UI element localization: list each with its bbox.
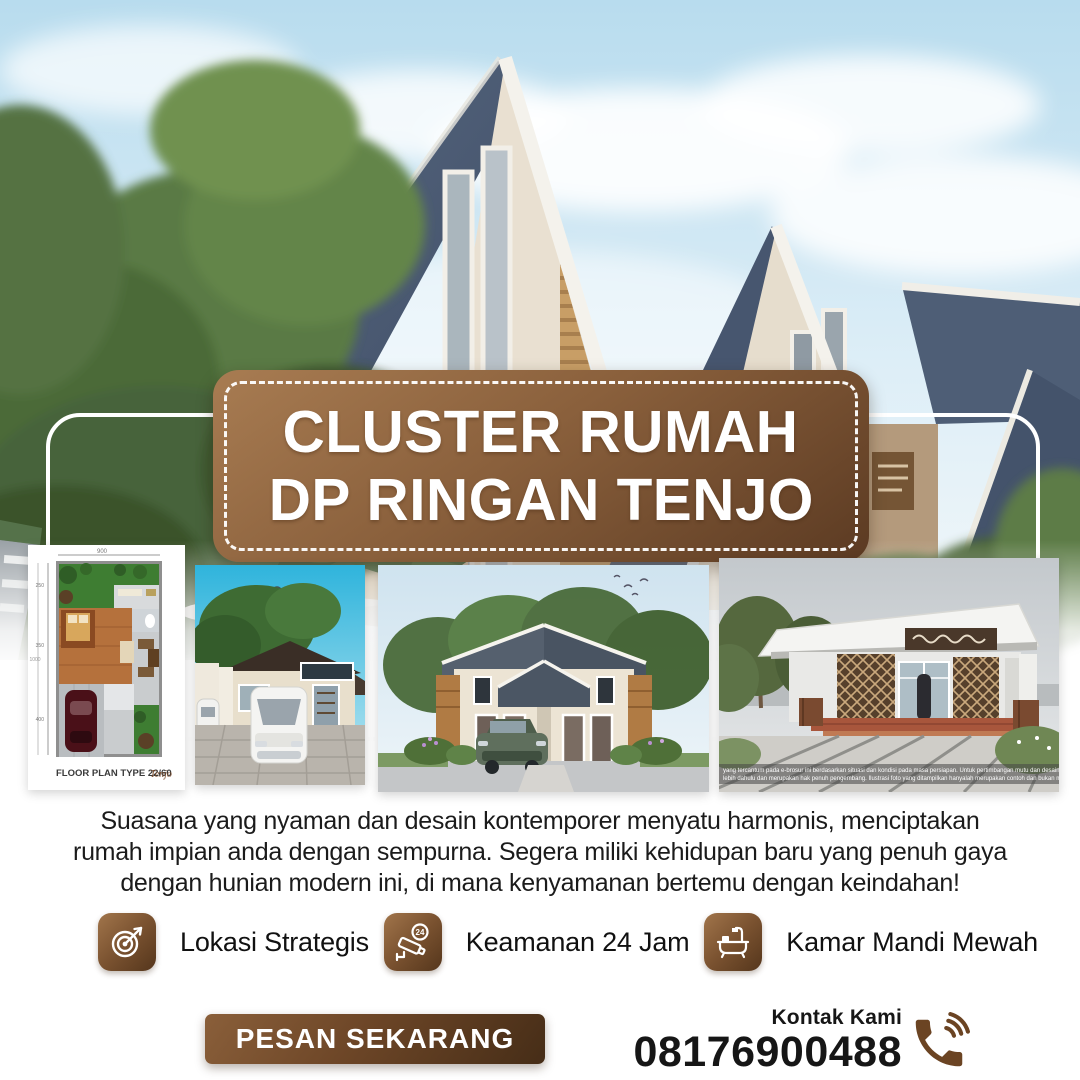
flyer-canvas: CLUSTER RUMAH DP RINGAN TENJO 900 250 35… bbox=[0, 0, 1080, 1080]
title-banner: CLUSTER RUMAH DP RINGAN TENJO bbox=[213, 370, 869, 562]
title-line-1: CLUSTER RUMAH bbox=[283, 398, 799, 466]
svg-text:lebih dahulu dan merupakan hak: lebih dahulu dan merupakan hak penuh pen… bbox=[723, 776, 1059, 782]
feature-location: Lokasi Strategis bbox=[98, 913, 369, 971]
floor-plan-dim-total: 1000 bbox=[29, 657, 40, 663]
cctv-icon: 24 bbox=[384, 913, 442, 971]
contact-label: Kontak Kami bbox=[590, 1006, 902, 1030]
description-line-3: dengan hunian modern ini, di mana kenyam… bbox=[50, 868, 1030, 899]
target-icon bbox=[98, 913, 156, 971]
floor-plan-image: 900 250 350 400 1000 bbox=[28, 545, 185, 790]
feature-bathroom: Kamar Mandi Mewah bbox=[704, 913, 1038, 971]
svg-text:yang tercantum pada e-brosur i: yang tercantum pada e-brosur ini berdasa… bbox=[723, 768, 1059, 774]
description: Suasana yang nyaman dan desain kontempor… bbox=[50, 806, 1030, 899]
house-thumbnail-image bbox=[195, 565, 365, 785]
floor-plan-dim-left-3: 400 bbox=[36, 717, 45, 723]
contact-phone-number[interactable]: 08176900488 bbox=[590, 1030, 902, 1074]
feature-security-label: Keamanan 24 Jam bbox=[466, 927, 690, 958]
description-line-2: rumah impian anda dengan sempurna. Seger… bbox=[50, 837, 1030, 868]
image-disclaimer: yang tercantum pada e-brosur ini berdasa… bbox=[719, 764, 1059, 784]
feature-bathroom-label: Kamar Mandi Mewah bbox=[786, 927, 1038, 958]
description-line-1: Suasana yang nyaman dan desain kontempor… bbox=[50, 806, 1030, 837]
twin-house-image bbox=[378, 565, 709, 792]
title-line-2: DP RINGAN TENJO bbox=[268, 466, 813, 534]
title-banner-border: CLUSTER RUMAH DP RINGAN TENJO bbox=[224, 381, 858, 551]
floor-plan-dim-top: 900 bbox=[97, 549, 108, 555]
feature-security: 24 Keamanan 24 Jam bbox=[384, 913, 690, 971]
person-silhouette bbox=[917, 674, 931, 720]
floor-plan-dim-left-1: 250 bbox=[36, 583, 45, 589]
order-now-button[interactable]: PESAN SEKARANG bbox=[205, 1014, 545, 1064]
white-car bbox=[251, 687, 307, 763]
contact-block[interactable]: Kontak Kami 08176900488 bbox=[590, 1006, 902, 1074]
clubhouse-image: yang tercantum pada e-brosur ini berdasa… bbox=[719, 558, 1059, 792]
feature-location-label: Lokasi Strategis bbox=[180, 927, 369, 958]
cctv-badge: 24 bbox=[415, 928, 424, 937]
phone-icon bbox=[908, 1012, 970, 1074]
floor-plan-dim-left-2: 350 bbox=[36, 643, 45, 649]
developer-logo: Tenjo bbox=[150, 769, 172, 780]
features-row: Lokasi Strategis 24 Keamanan 24 Jam bbox=[98, 913, 1038, 971]
bathtub-icon bbox=[704, 913, 762, 971]
